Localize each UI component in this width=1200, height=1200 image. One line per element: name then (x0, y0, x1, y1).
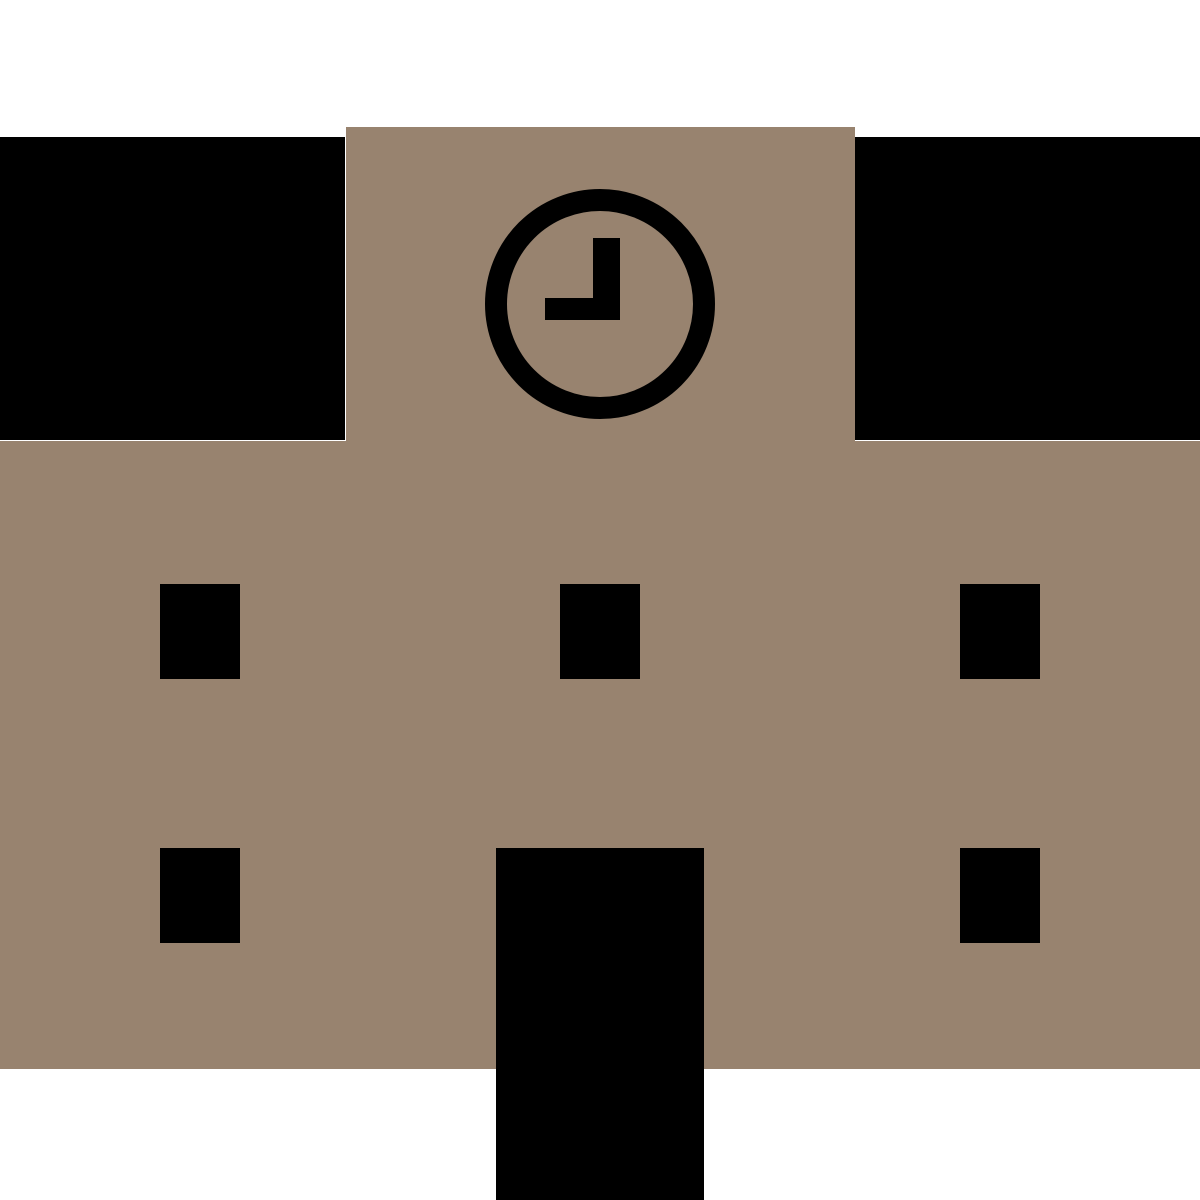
left-wing-block (0, 137, 345, 440)
door (496, 848, 704, 1200)
window-lower-right (960, 848, 1040, 943)
clock-icon (460, 164, 740, 444)
right-wing-block (855, 137, 1200, 440)
window-upper-left (160, 584, 240, 679)
clock-tower (346, 127, 855, 443)
clock-hands (545, 238, 620, 320)
window-upper-right (960, 584, 1040, 679)
school-building-icon (0, 0, 1200, 1200)
building-body (0, 441, 1200, 1069)
window-upper-center (560, 584, 640, 679)
window-lower-left (160, 848, 240, 943)
